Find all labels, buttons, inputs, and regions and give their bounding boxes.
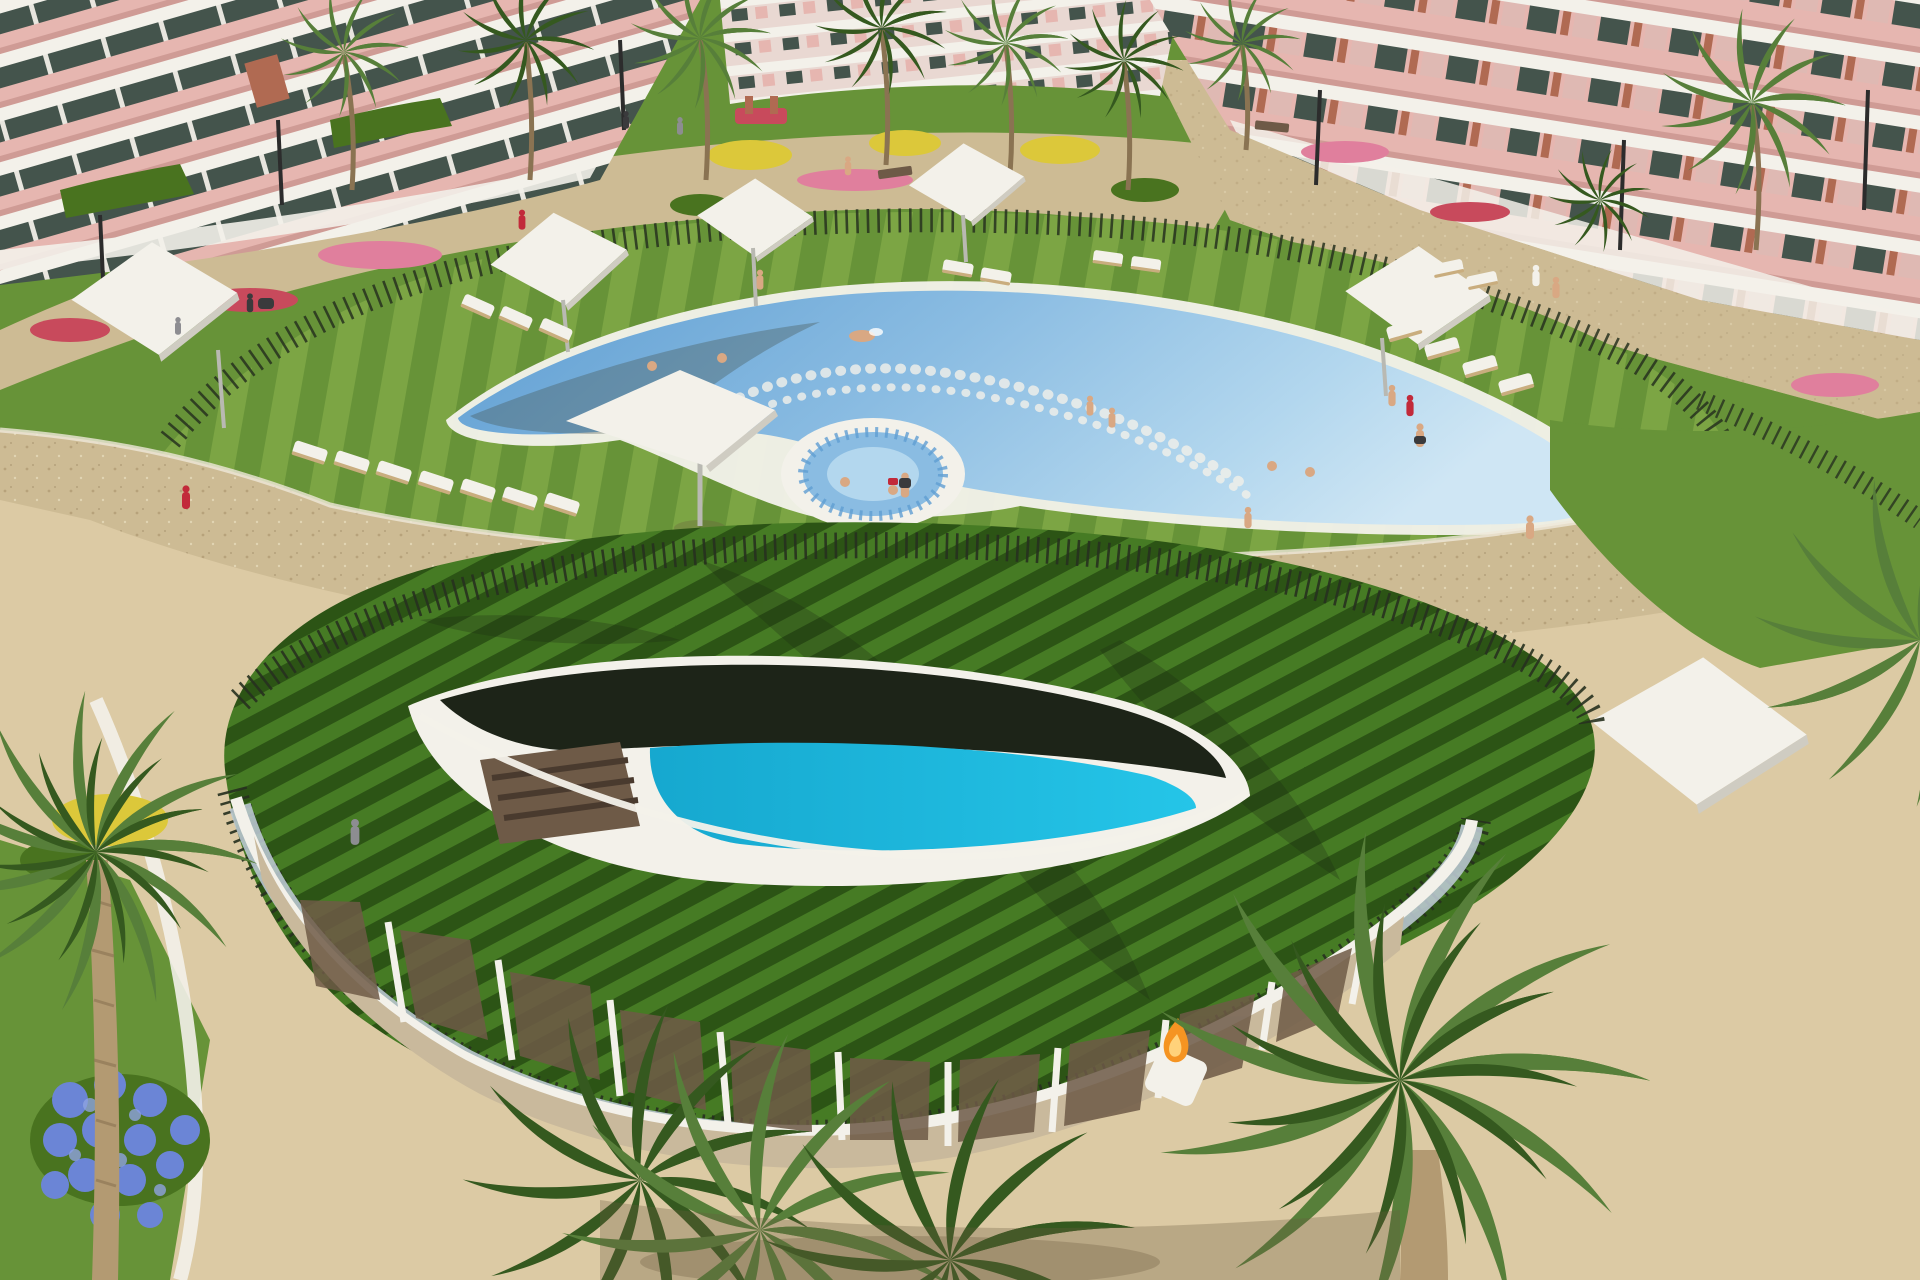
- bench-sitter: [175, 317, 181, 335]
- walker-swimsuit: [899, 478, 911, 488]
- kids-pool-bather: [888, 485, 898, 495]
- right-lawn-walker: [1526, 515, 1534, 539]
- architectural-render-image: %: [0, 0, 1920, 1280]
- shelf-bather-1: [1087, 396, 1094, 416]
- lawn-walker-1: [1532, 265, 1539, 286]
- kids-pool: [781, 418, 965, 530]
- kids-pool-bather-suit: [888, 478, 898, 485]
- garden-stroll-2: [677, 117, 683, 135]
- garden-stroll-1: [623, 111, 629, 129]
- pool-edge-bather: [1244, 507, 1251, 528]
- stroller: [258, 298, 274, 309]
- shelf-bather-2: [1109, 408, 1116, 428]
- poolside-man-shorts: [1414, 436, 1426, 444]
- lawn-walker-2: [1552, 277, 1559, 298]
- stroller-parent: [247, 293, 253, 312]
- poolside-pair-1: [1388, 385, 1395, 406]
- poolside-pair-2: [1406, 395, 1413, 416]
- garden-person: [845, 156, 851, 175]
- walker-red-top: [182, 485, 190, 509]
- person-under-parasol: [757, 270, 764, 290]
- render-canvas: %: [0, 0, 1920, 1280]
- kids-pool-bather: [840, 477, 850, 487]
- garden-walker: [519, 210, 526, 230]
- person-on-roof-lawn: [351, 819, 360, 845]
